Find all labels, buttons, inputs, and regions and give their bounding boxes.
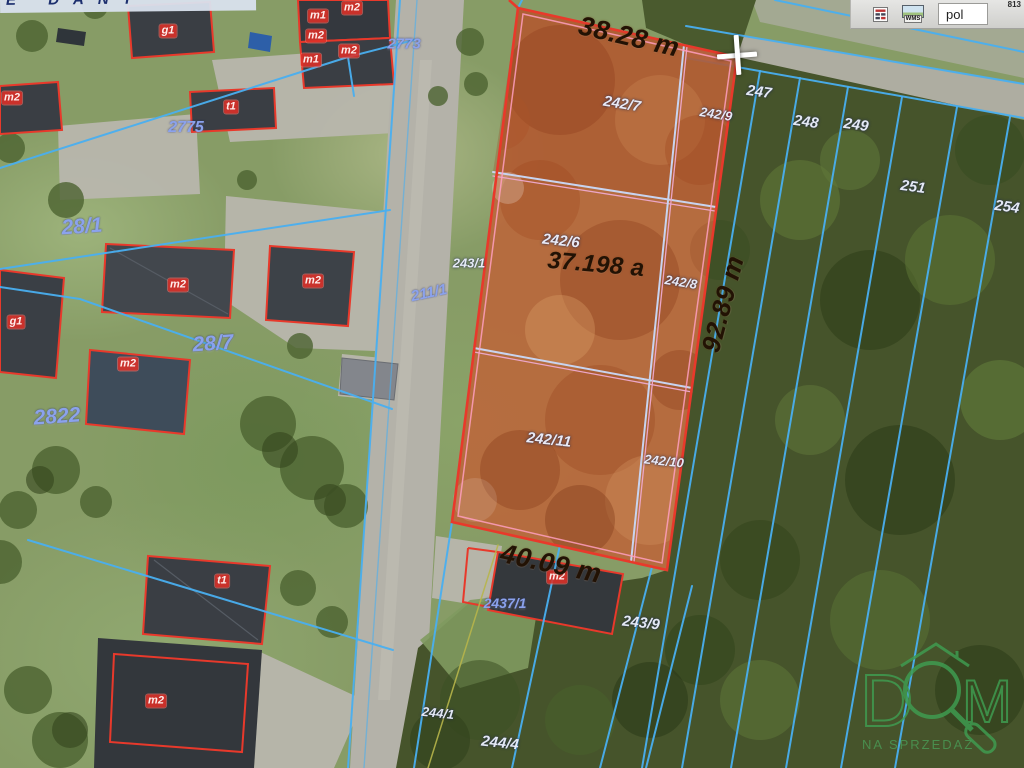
grid-icon <box>873 7 888 22</box>
logo-letter-d: D <box>860 659 913 742</box>
map-viewport[interactable]: 242/7242/9242/6242/8242/11242/10243/1247… <box>0 0 1024 768</box>
logo-subtitle: NA SPRZEDAŻ <box>862 737 974 752</box>
wms-label: WMS <box>904 15 923 23</box>
dom-na-sprzedaz-logo: D M NA SPRZEDAŻ <box>856 636 1024 768</box>
wms-tool-button[interactable]: WMS <box>902 5 924 23</box>
logo-letter-m: M <box>962 668 1012 735</box>
language-selector[interactable]: pol <box>938 3 988 25</box>
toolbar-number: 813 <box>1008 0 1021 9</box>
street-name-text: E DANT <box>0 0 256 9</box>
map-toolbar: 813 WMS pol <box>850 0 1024 29</box>
grid-tool-button[interactable] <box>873 7 888 22</box>
